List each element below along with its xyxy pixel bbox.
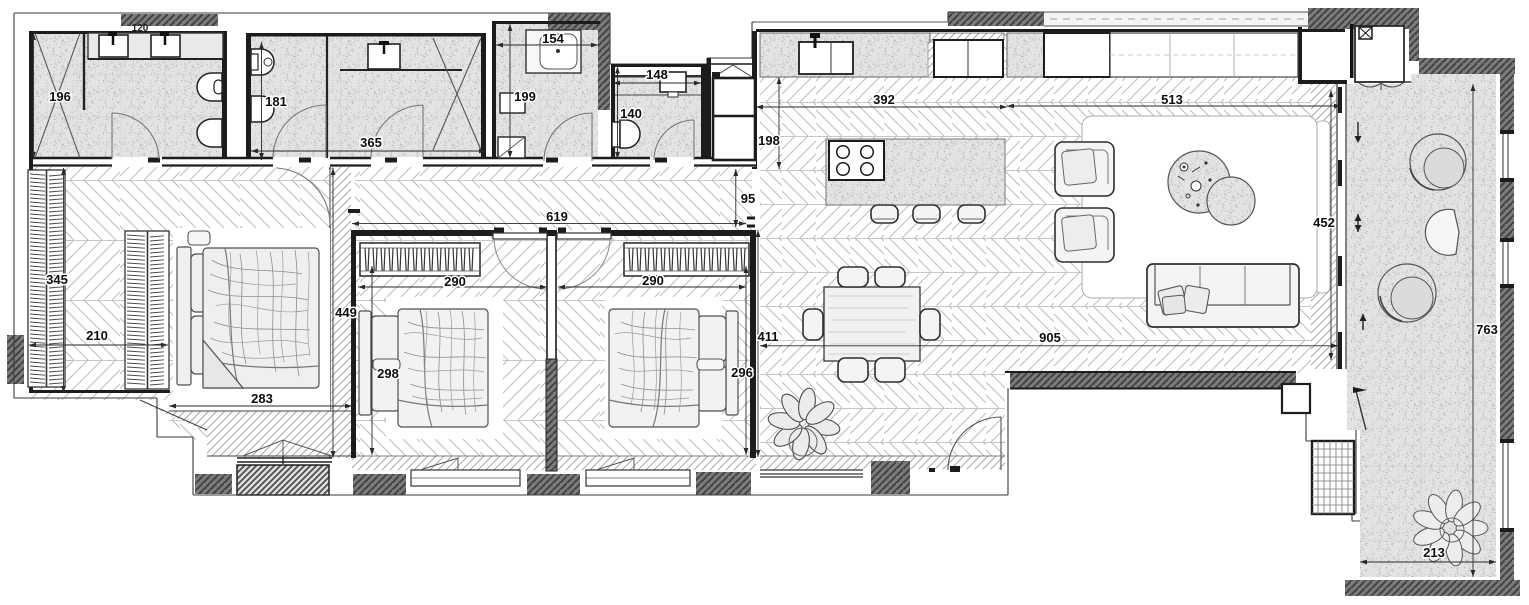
svg-text:513: 513	[1161, 92, 1183, 107]
svg-text:196: 196	[49, 89, 71, 104]
svg-text:452: 452	[1313, 215, 1335, 230]
svg-text:365: 365	[360, 135, 382, 150]
svg-text:154: 154	[542, 31, 564, 46]
svg-text:148: 148	[646, 67, 668, 82]
svg-text:411: 411	[758, 329, 779, 344]
svg-text:298: 298	[377, 366, 399, 381]
svg-text:210: 210	[86, 328, 108, 343]
svg-text:296: 296	[731, 365, 753, 380]
svg-text:120: 120	[132, 23, 149, 34]
svg-text:181: 181	[265, 94, 287, 109]
svg-text:140: 140	[620, 106, 642, 121]
svg-text:290: 290	[444, 274, 466, 289]
svg-text:392: 392	[873, 92, 895, 107]
svg-text:449: 449	[335, 305, 357, 320]
svg-text:95: 95	[741, 191, 755, 206]
svg-text:283: 283	[251, 391, 273, 406]
svg-text:345: 345	[46, 272, 68, 287]
svg-text:213: 213	[1423, 545, 1445, 560]
svg-text:763: 763	[1476, 322, 1498, 337]
svg-text:198: 198	[758, 133, 780, 148]
svg-text:290: 290	[642, 273, 664, 288]
svg-text:905: 905	[1039, 330, 1061, 345]
svg-text:619: 619	[546, 209, 568, 224]
svg-text:199: 199	[514, 89, 536, 104]
